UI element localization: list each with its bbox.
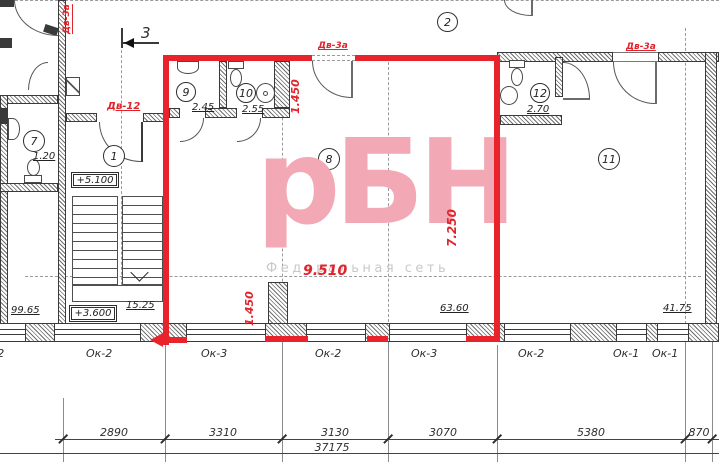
room-number-12: 12 [533, 87, 547, 100]
window-label-w0: Ок-2 [0, 347, 4, 360]
door-arc-right [613, 62, 655, 104]
wall-pier-room10 [274, 61, 290, 108]
room-area-7: 1.20 [33, 151, 55, 162]
room-number-11: 11 [602, 153, 616, 166]
wall-left-exterior [0, 95, 8, 324]
watermark-logo: рБН [256, 128, 511, 237]
window-label-w2: Ок-3 [201, 347, 227, 360]
window-label-w4: Ок-3 [411, 347, 437, 360]
pier-2-stub [268, 282, 288, 324]
red-dim-bottom: 1.450 [243, 278, 256, 326]
room-area-9: 2.45 [192, 102, 214, 113]
ext-line-282 [282, 342, 283, 462]
ext-line-388 [388, 342, 389, 462]
toilet-tank-icon-room12 [509, 60, 525, 68]
window-label-w1: Ок-2 [86, 347, 112, 360]
dim-line-2 [0, 453, 719, 454]
wall-room7-top [0, 95, 58, 104]
area-value-hall: 63.60 [440, 303, 469, 314]
red-outline-top-a [163, 55, 312, 61]
room-bubble-7: 7 [23, 130, 45, 152]
room-number-10: 10 [239, 87, 253, 100]
dim-value-4: 3070 [423, 426, 463, 439]
window-w0 [0, 323, 25, 342]
door-arc-mid [312, 61, 351, 98]
room-number-7: 7 [31, 135, 38, 148]
window-w7 [658, 323, 688, 342]
section-marker-line-v [121, 28, 123, 48]
edge-fragment-2 [0, 38, 12, 48]
dim-value-2: 3310 [203, 426, 243, 439]
door-arc-left-room [28, 62, 48, 90]
wall-910-bottom-a [169, 108, 180, 118]
red-outline-top-b [355, 55, 497, 61]
toilet-tank-icon-room10 [228, 61, 244, 69]
pier-6 [646, 323, 658, 342]
pier-7-corner [688, 323, 719, 342]
room-bubble-9: 9 [176, 82, 196, 102]
red-outline-bottom-b [265, 336, 308, 342]
dim-value-5: 5380 [571, 426, 611, 439]
elevation-upper: +5.100 [76, 175, 113, 186]
watermark-tagline: Федеральная сеть [266, 261, 449, 276]
ext-line-712 [712, 332, 713, 462]
section-arrow-icon [124, 38, 134, 48]
door-label-right: Дв-3а [626, 42, 656, 52]
room-bubble-10: 10 [236, 83, 256, 103]
door-label-top-left: Дв-3а [62, 4, 72, 34]
red-dim-width: 9.510 [303, 263, 347, 279]
sink-icon-room12 [500, 86, 518, 105]
room-bubble-1: 1 [103, 145, 125, 167]
wall-left-vertical [58, 0, 66, 324]
door-label-room1: Дв-12 [107, 101, 140, 112]
sink-icon [8, 118, 20, 140]
room-bubble-11: 11 [598, 148, 620, 170]
section-marker-label: 3 [141, 24, 151, 42]
axis-horizontal [0, 0, 719, 1]
wall-room12-right [555, 57, 563, 97]
window-label-w3: Ок-2 [315, 347, 341, 360]
window-w1 [55, 323, 140, 342]
room-number-1: 1 [111, 150, 118, 163]
elevation-box-lower: +3.600 [69, 305, 117, 322]
floor-plan: 2 3 Дв-3а 7 1.20 99.65 Дв-12 1 +5.100 [0, 0, 719, 465]
dim-value-3: 3130 [315, 426, 355, 439]
room-number-9: 9 [183, 86, 190, 99]
red-dim-top: 1.450 [289, 66, 302, 114]
wall-divider-9-10 [219, 61, 227, 108]
sink-drain-icon-room10 [263, 91, 268, 96]
room-bubble-12: 12 [530, 83, 550, 103]
window-w6 [617, 323, 646, 342]
red-outline-left [163, 55, 169, 345]
grid-bubble-2: 2 [437, 12, 458, 32]
edge-fragment-3 [0, 108, 8, 124]
shaft-box [66, 77, 80, 96]
toilet-tank-icon [24, 175, 42, 183]
ext-line-685 [685, 332, 686, 462]
red-outline-right [494, 55, 500, 342]
area-value-right: 41.75 [663, 303, 692, 314]
window-w3 [307, 323, 365, 342]
door-arc-top-left [14, 0, 58, 36]
edge-fragment-1 [0, 0, 14, 7]
elevation-lower: +3.600 [74, 308, 111, 319]
red-outline-bottom-c [367, 336, 388, 342]
sink-icon-room9 [177, 61, 199, 74]
wall-right-exterior [705, 52, 717, 330]
wall-room7-bottom [0, 183, 58, 192]
dim-value-6: 870 [683, 426, 715, 439]
axis-vertical-4 [685, 28, 686, 324]
red-outline-bottom-a [163, 337, 187, 343]
red-dim-height: 7.250 [445, 195, 459, 247]
door-leaf-room1 [141, 122, 143, 162]
red-outline-bottom-d [466, 336, 500, 342]
dim-value-1: 2890 [94, 426, 134, 439]
door-label-mid: Дв-3а [318, 41, 348, 51]
door-arc-room9 [180, 118, 204, 142]
wall-room1-top-a [66, 113, 97, 122]
wall-room1-top-b [143, 113, 164, 122]
room-area-12: 2.70 [527, 104, 549, 115]
window-w5 [505, 323, 570, 342]
door-arc-room12 [563, 62, 590, 99]
grid-bubble-2-label: 2 [444, 16, 451, 29]
ext-line-497 [497, 345, 498, 462]
door-threshold-right [613, 52, 658, 62]
dim-value-total: 37175 [309, 441, 355, 454]
area-value-stair: 15.25 [126, 300, 155, 311]
ext-line-165 [165, 345, 166, 462]
red-arrow-icon [150, 333, 163, 347]
window-label-w6: Ок-1 [613, 347, 639, 360]
top-door-arc-fragment [504, 0, 531, 16]
pier-0 [25, 323, 55, 342]
door-leaf-mid [351, 61, 353, 98]
window-w4 [390, 323, 466, 342]
pier-5 [570, 323, 617, 342]
elevation-box-upper: +5.100 [71, 172, 119, 188]
area-value-corridor: 99.65 [11, 305, 40, 316]
stair-flight-left [72, 196, 118, 285]
window-label-w7: Ок-1 [652, 347, 678, 360]
door-leaf-right [655, 62, 657, 104]
toilet-bowl-icon-room12 [511, 68, 523, 86]
top-door-leaf-fragment [531, 0, 533, 16]
window-label-w5: Ок-2 [518, 347, 544, 360]
